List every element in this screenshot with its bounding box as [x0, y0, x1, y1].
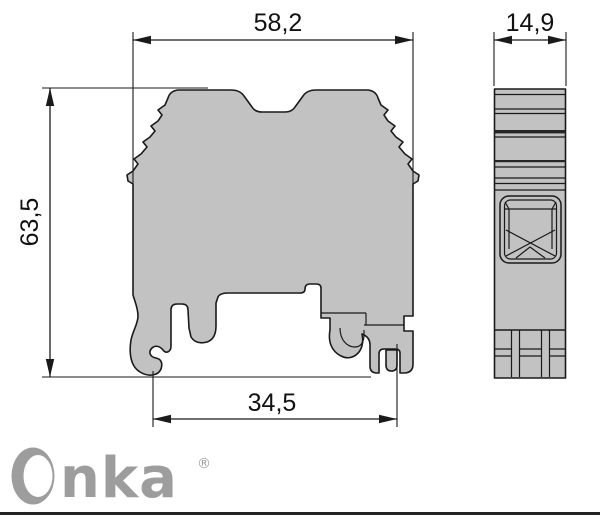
footer-divider: [0, 512, 600, 515]
dimension-rail-width: 34,5: [153, 344, 397, 427]
dimension-rail-width-value: 34,5: [248, 389, 297, 417]
technical-drawing: 58,2 14,9 63,5 34,5 nka ®: [0, 0, 600, 519]
arrowhead-bottom: [46, 359, 54, 377]
dimension-side-width-value: 14,9: [506, 9, 555, 37]
dimension-side-width: 14,9: [494, 9, 566, 86]
arrowhead-right: [548, 36, 566, 44]
side-view: [495, 89, 566, 378]
arrowhead-left: [133, 36, 151, 44]
dimension-front-height-value: 63,5: [16, 198, 44, 247]
dimension-front-width-value: 58,2: [254, 9, 303, 37]
front-view: [127, 90, 419, 375]
arrowhead-right: [379, 415, 397, 423]
side-view-dark-band-2: [495, 160, 566, 162]
arrowhead-left: [494, 36, 512, 44]
onka-logo: nka ®: [12, 446, 212, 511]
side-view-dark-band: [495, 130, 566, 133]
arrowhead-left: [153, 415, 171, 423]
arrowhead-right: [395, 36, 413, 44]
front-view-body: [127, 90, 419, 375]
front-view-foot-tab: [386, 350, 397, 371]
logo-text: nka: [60, 446, 178, 511]
arrowhead-top: [46, 88, 54, 106]
logo-o-cut: [24, 455, 53, 497]
registered-trademark: ®: [197, 456, 211, 472]
